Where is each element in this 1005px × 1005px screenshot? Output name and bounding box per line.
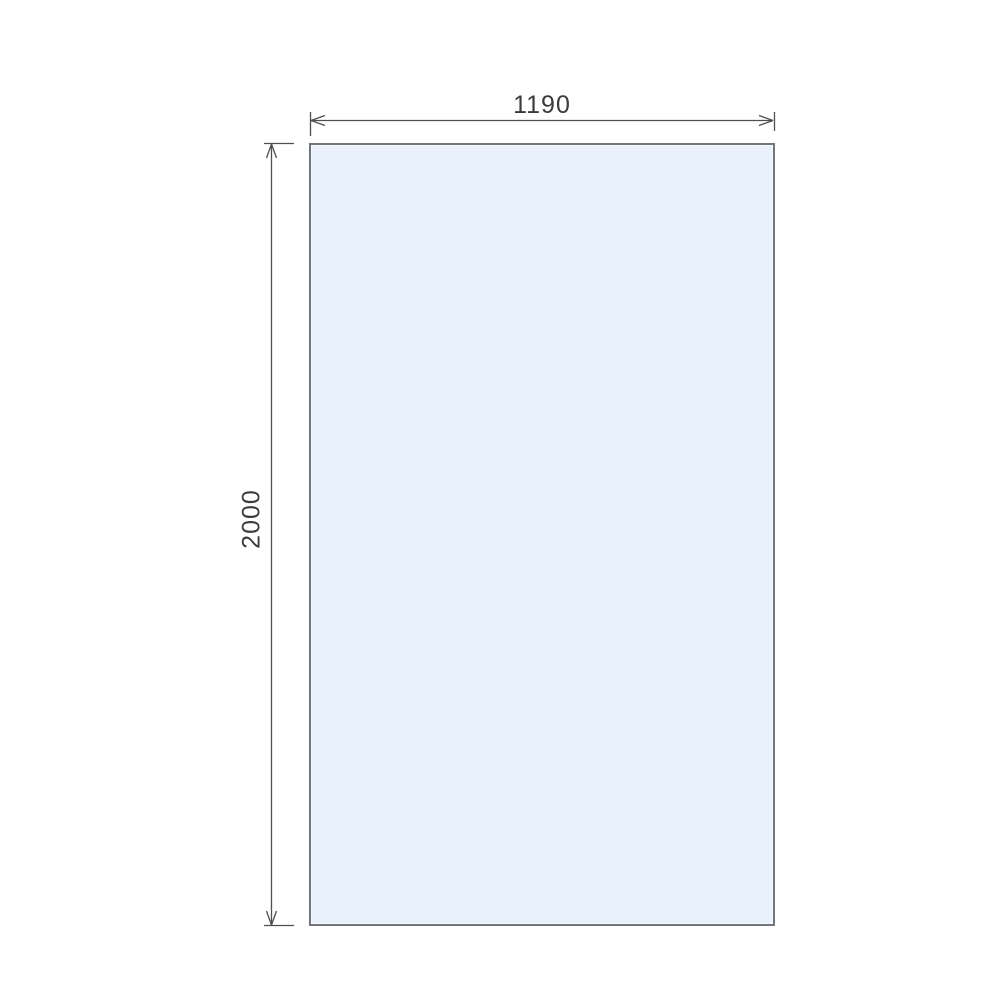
height-dim-arrow-top-icon: [267, 144, 277, 158]
glass-panel-rect: [309, 143, 775, 926]
height-dim-arrow-bottom-icon: [267, 911, 277, 925]
height-dimension-label: 2000: [240, 489, 265, 549]
width-dimension-label: 1190: [309, 93, 775, 118]
diagram-canvas: 1190 2000: [0, 0, 1005, 1005]
